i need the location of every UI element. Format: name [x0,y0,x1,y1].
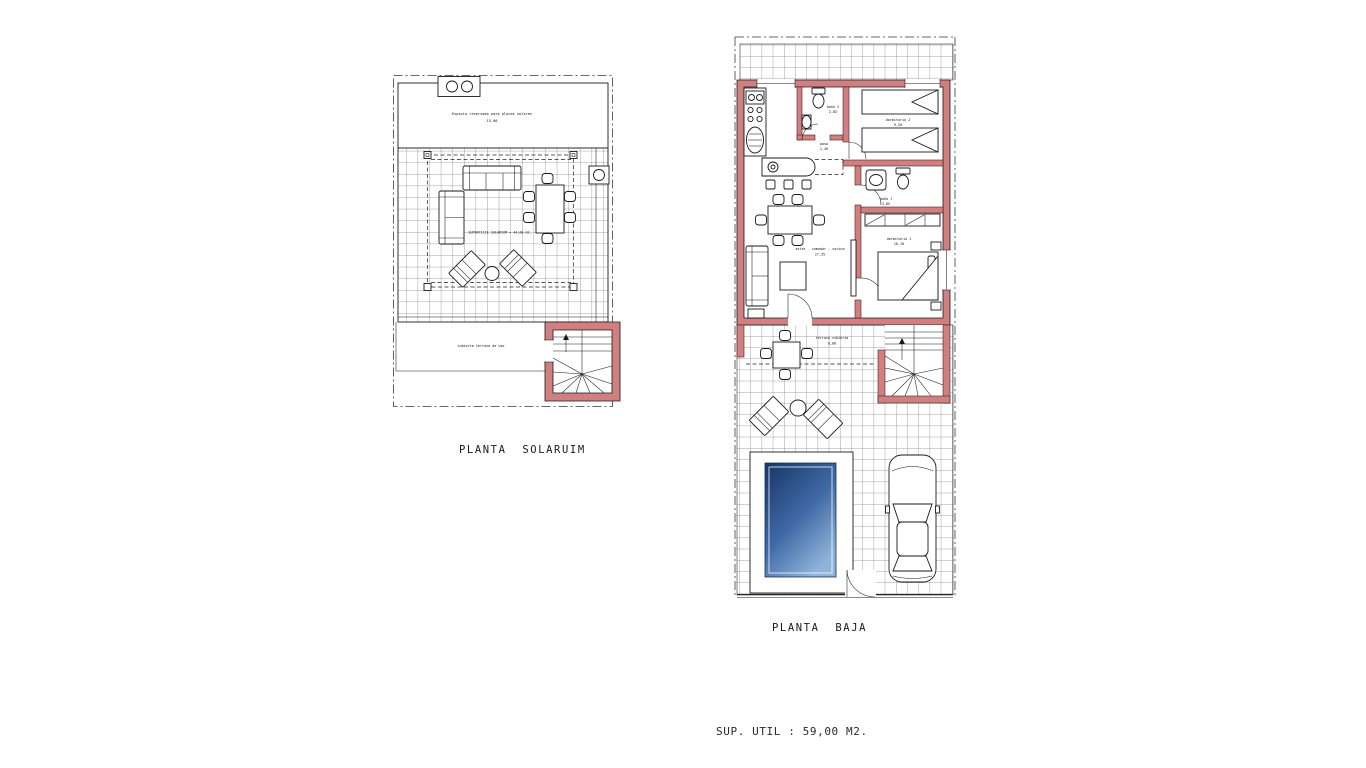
pergola-post [570,284,577,291]
chair [524,192,535,202]
nightstand [931,302,941,310]
car [886,455,940,582]
toilet-tank [812,88,825,94]
stool [802,180,811,189]
solarium-sofa [463,166,521,190]
room-label-estar: estar - comedor - cocina [796,247,845,251]
surface-summary: SUP. UTIL : 59,00 M2. SUP. CONSTRUIDA: 7… [716,676,947,768]
solar-panel-zone: Espacio reservado para placas solares 15… [438,77,532,124]
room-area-paso: 1,40 [820,147,828,151]
chair [802,349,813,359]
chair [542,174,553,184]
ground-plan-title: PLANTA BAJA [772,622,867,634]
stool [766,180,775,189]
toilet-tank [896,168,910,174]
chair [565,213,576,223]
skylight-box [589,166,609,184]
room-area-estar: 27,35 [815,253,825,257]
room-area-terraza: 8,00 [828,342,836,346]
yard-gate [845,570,876,597]
chair [524,213,535,223]
chair [792,236,803,246]
room-area-dormitorio1: 10,10 [894,242,904,246]
room-label-terraza: terraza cubierta [816,336,849,340]
pool-water [765,463,836,577]
solar-panel-icon [462,81,473,92]
solarium-side-table [485,267,499,281]
ground-staircase [878,325,950,403]
chair [773,236,784,246]
window [905,79,940,88]
house: baño 2 2,85 paso 1,40 dormitorio 2 9,20 [737,79,951,326]
solarium-lower-terrace: cubierta terraza de uso [396,322,546,371]
solar-panel-box [438,77,480,97]
covered-terrace-note: cubierta terraza de uso [458,344,505,348]
room-label-paso: paso [820,142,828,146]
corridor: paso 1,40 [820,142,828,151]
breakfast-bar [762,158,815,176]
pergola-post [424,152,431,159]
wardrobe [865,214,940,226]
window [942,250,951,290]
chair [756,215,767,225]
floor-plan-ground: baño 2 2,85 paso 1,40 dormitorio 2 9,20 [726,28,964,610]
solarium-plan-title: PLANTA SOLARUIM [459,444,586,456]
solarium-staircase [544,322,620,401]
car-mirror [886,506,890,513]
solar-panel-icon [447,81,458,92]
solarium-surface-note: SUPERFICIE SOLARIUM = 44,00 m2. [468,231,531,235]
pergola-post [424,284,431,291]
ottoman [748,309,764,318]
toilet [898,175,909,189]
summary-sup-util: SUP. UTIL : 59,00 M2. [716,721,947,744]
dining-table [768,206,812,234]
chair [814,215,825,225]
room-label-bano1: baño 1 [880,197,892,201]
dining-table [536,185,564,233]
swimming-pool [750,452,853,593]
nightstand [931,242,941,250]
chair [773,195,784,205]
chair [792,195,803,205]
room-label-bano2: baño 2 [827,105,839,109]
room-label-dormitorio2: dormitorio 2 [886,118,911,122]
room-label-dormitorio1: dormitorio 1 [887,237,912,241]
chair [780,370,791,380]
stool [784,180,793,189]
architectural-drawing-sheet: Espacio reservado para placas solares 15… [0,0,1366,768]
chair [761,349,772,359]
chair [780,331,791,341]
tv-unit [851,240,856,296]
solar-zone-note: Espacio reservado para placas solares [452,112,532,116]
room-area-bano1: 3,85 [882,202,890,206]
chair [565,192,576,202]
rear-terrace-tiles [740,44,953,80]
solar-zone-area: 15,00 [487,119,498,123]
car-mirror [936,506,940,513]
floor-plan-solarium: Espacio reservado para placas solares 15… [388,68,672,420]
stair-direction-arrow [563,334,569,352]
window [757,79,795,88]
room-area-bano2: 2,85 [829,110,837,114]
pergola-post [570,152,577,159]
room-area-dormitorio2: 9,20 [894,123,902,127]
yard-side-table [790,400,806,416]
porch-wall-stub [737,325,744,357]
solarium-loveseat [439,191,464,244]
chair [542,234,553,244]
toilet [813,94,824,108]
porch-table [773,342,800,368]
coffee-table [780,262,806,290]
